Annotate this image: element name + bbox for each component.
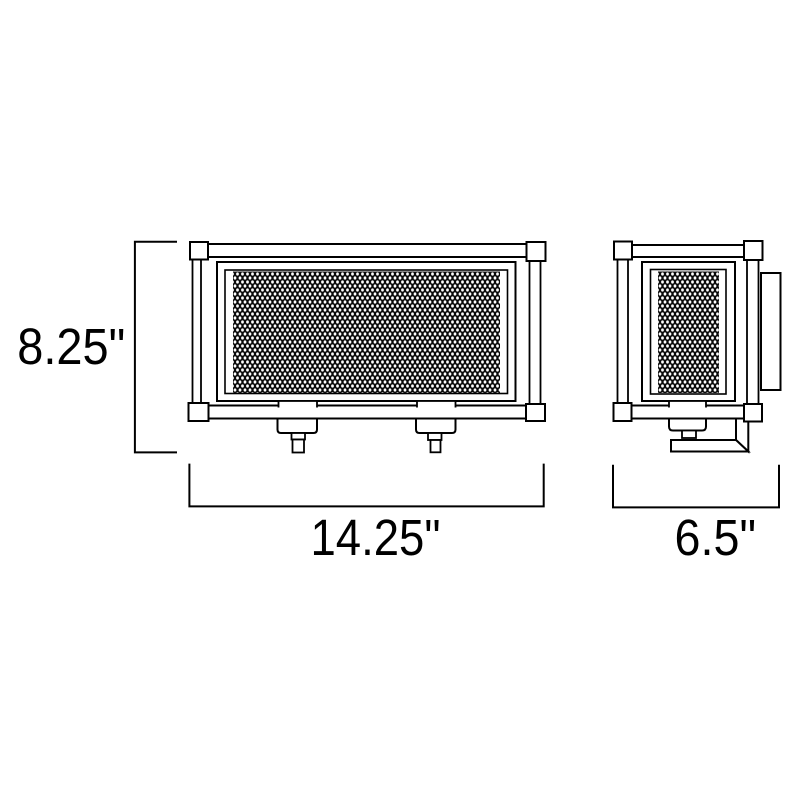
svg-text:6.5": 6.5": [675, 509, 757, 566]
svg-text:14.25": 14.25": [311, 509, 441, 566]
svg-text:8.25": 8.25": [17, 318, 125, 375]
